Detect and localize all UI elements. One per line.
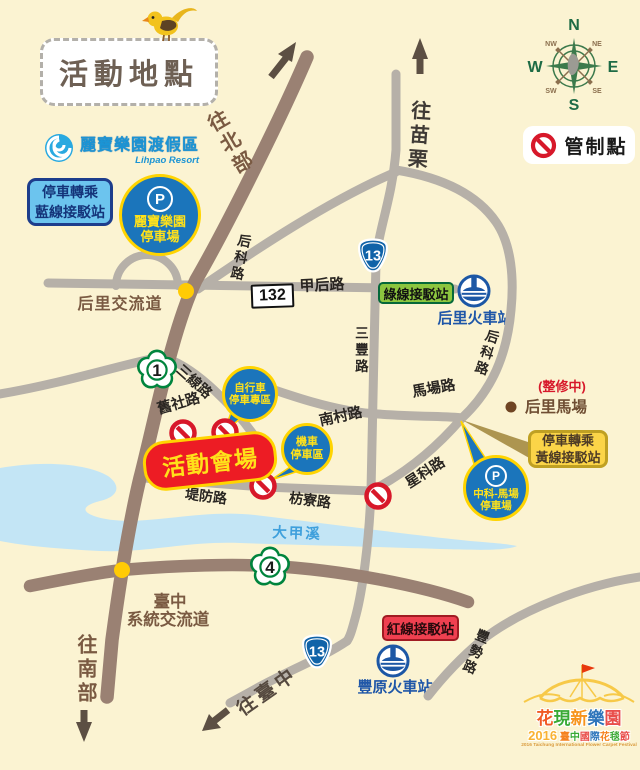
svg-text:4: 4: [265, 558, 275, 577]
train-station-icon: [457, 274, 491, 308]
flower-festival-logo: 花現新樂園 2016 臺中國際花毯節 2016 Taichung Interna…: [520, 662, 638, 766]
festival-english-name: 2016 Taichung International Flower Carpe…: [520, 743, 638, 748]
page-title: 活動地點: [40, 38, 218, 106]
parking-icon: P: [147, 186, 173, 212]
compass-se: SE: [592, 88, 602, 95]
bike-parking-balloon: 自行車 停車專區: [222, 366, 278, 422]
yellow-line-transfer-badge: 停車轉乘 黃線接駁站: [528, 430, 608, 468]
page-title-text: 活動地點: [59, 51, 199, 93]
route-13-shield-north: 13: [357, 238, 389, 275]
route-1-shield: 1: [135, 348, 179, 392]
moto-parking-balloon: 機車 停車區: [281, 423, 333, 475]
control-point-label: 管制點: [564, 132, 627, 159]
houli-interchange-dot: [178, 283, 194, 299]
taichung-interchange-dot: [114, 562, 130, 578]
compass-sw: SW: [545, 88, 557, 95]
event-location-map: 活動地點 N S W E NW NE SW SE: [0, 0, 640, 770]
svg-text:1: 1: [152, 361, 161, 380]
blue-transfer-line2: 藍線接駁站: [35, 202, 105, 222]
water-swirl-icon: [42, 131, 76, 165]
festival-subtitle: 2016 臺中國際花毯節: [520, 728, 638, 743]
festival-title: 花現新樂園: [520, 704, 638, 729]
green-line-shuttle-badge: 綠線接駁站: [378, 282, 454, 304]
lihpao-subtitle: Lihpao Resort: [80, 155, 199, 166]
svg-text:13: 13: [309, 645, 325, 661]
horse-ranch-label: 后里馬場: [520, 399, 592, 416]
lihpao-parking-line2: 停車場: [140, 229, 179, 244]
lihpao-parking-balloon: P 麗寶樂園 停車場: [119, 174, 201, 256]
compass-n: N: [568, 17, 580, 34]
train-station-icon: [376, 644, 410, 678]
route-13-shield-south: 13: [301, 634, 333, 671]
taichung-interchange-label-line2: 系統交流道: [116, 611, 220, 629]
road-label-sanfeng: 三豐路: [352, 322, 367, 380]
compass-rose: N S W E NW NE SW SE: [520, 10, 628, 118]
direction-south-label: 往南部: [74, 630, 96, 710]
compass-ne: NE: [592, 41, 602, 48]
lihpao-resort-logo: 麗寶樂園渡假區 Lihpao Resort: [42, 131, 212, 179]
bird-icon: [142, 2, 198, 42]
compass-s: S: [569, 97, 580, 114]
blue-transfer-line1: 停車轉乘: [42, 182, 98, 202]
lihpao-name: 麗寶樂園渡假區: [80, 131, 199, 155]
svg-text:13: 13: [365, 249, 381, 265]
lihpao-parking-line1: 麗寶樂園: [134, 214, 186, 229]
parking-icon: P: [485, 465, 507, 487]
no-entry-icon: [530, 132, 557, 159]
taichung-interchange-label-line1: 臺中: [148, 593, 192, 611]
horse-ranch-note: (整修中): [524, 380, 600, 394]
road-label-jiahou: 甲后路: [296, 277, 349, 296]
houli-interchange-label: 后里交流道: [68, 296, 172, 314]
control-point-legend: 管制點: [523, 126, 635, 164]
route-4-shield: 4: [248, 545, 292, 589]
no-entry-icon: [367, 485, 390, 508]
river-label: 大甲溪: [272, 526, 323, 544]
compass-e: E: [608, 59, 619, 76]
horse-ranch-dot: [506, 402, 517, 413]
compass-nw: NW: [545, 41, 557, 48]
route-132-shield: 132: [251, 283, 295, 308]
compass-w: W: [527, 59, 543, 76]
blue-line-transfer-badge: 停車轉乘 藍線接駁站: [27, 178, 113, 226]
zhongke-parking-balloon: P 中科-馬場 停車場: [463, 455, 529, 521]
red-line-shuttle-badge: 紅線接駁站: [382, 615, 459, 641]
